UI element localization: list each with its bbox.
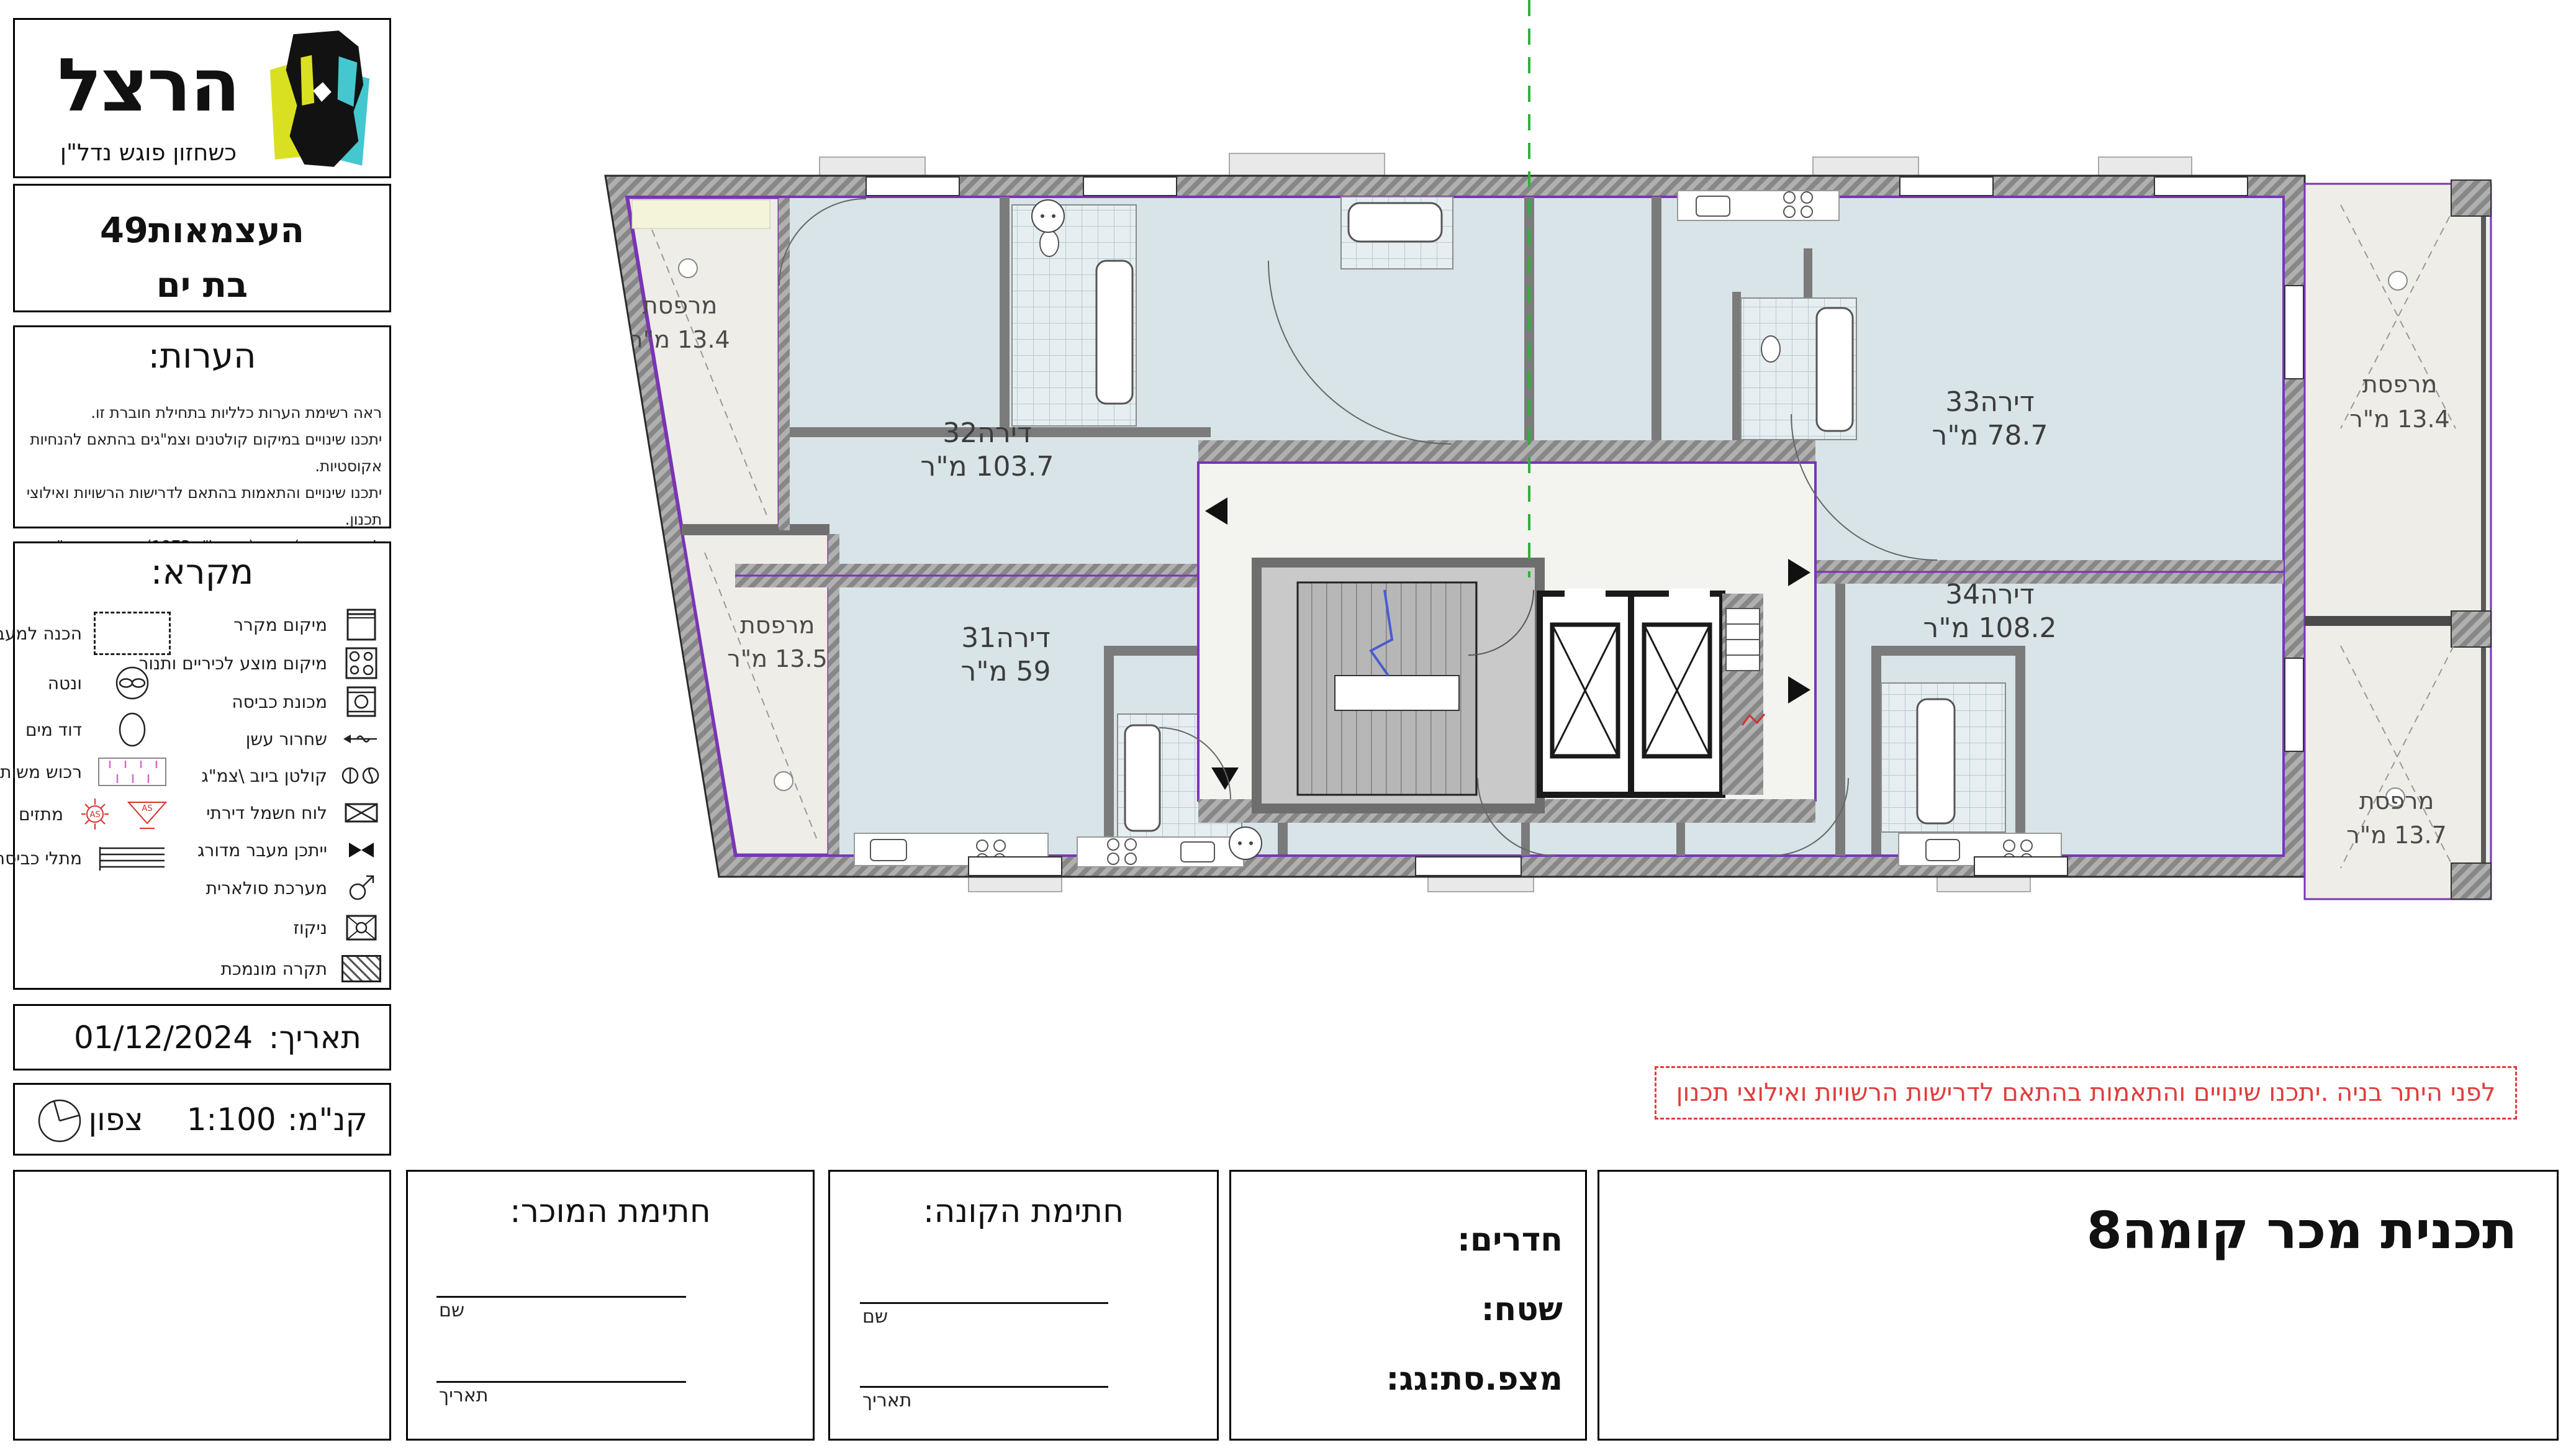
buyer-name-line[interactable]: [860, 1302, 1108, 1304]
smoke-release-icon: [337, 730, 386, 748]
legend-item-electrical-panel: לוח חשמל דירתי: [204, 794, 386, 831]
legend-item-solar-system: מערכת סולארית: [204, 869, 386, 907]
legend-item-stove: מיקום מוצע לכיריים ותנור: [204, 644, 386, 682]
apartment-31-area: 59 מ"ר: [961, 656, 1051, 687]
floor-plan: דירה32 103.7 מ"ר דירה33 78.7 מ"ר דירה31 …: [577, 149, 2539, 913]
legend-item-vent: ונטה: [17, 659, 173, 707]
scale-box: קנ"מ: 1:100 צפון: [13, 1083, 391, 1156]
sewage-collector-icon: [337, 765, 386, 786]
apartment-details-box: חדרים: שטח: מצפ.סת:גג:: [1229, 1170, 1587, 1441]
solar-system-icon: [337, 872, 386, 904]
core-top-wall: [1198, 440, 1815, 464]
seller-date-label: תאריך: [439, 1385, 489, 1406]
balcony-divider-wall: [682, 524, 829, 535]
section-line: [1528, 0, 1530, 577]
notes-box: הערות: ראה רשימת הערות כלליות בתחילת חוב…: [13, 325, 391, 528]
balcony-right-bottom-area: 13.7 מ"ר: [2346, 822, 2446, 849]
project-name-box: העצמאות49 בת ים: [13, 184, 391, 312]
electrical-panel-icon: [337, 802, 386, 824]
empty-title-block-box: [13, 1170, 391, 1441]
legend-item-condenser-prep: הכנה למעבה: [17, 608, 173, 659]
planning-warning-text: לפני היתר בניה .יתכנו שינויים והתאמות בה…: [1676, 1079, 2496, 1107]
drawing-title-box: תכנית מכר קומה8: [1598, 1170, 2559, 1441]
seller-date-line[interactable]: [436, 1381, 686, 1383]
legend-box: מקרא: מיקום מקרר מיקום מוצע לכיריים ותנו…: [13, 541, 391, 990]
apartment-33-name: דירה33: [1945, 386, 2034, 418]
elevator-door-gap: [1565, 589, 1606, 599]
apartment-31-name: דירה31: [961, 622, 1050, 654]
note-line-3: יתכנו שינויים והתאמות בהתאם לדרישות הרשו…: [20, 479, 382, 533]
drawing-title: תכנית מכר קומה8: [2087, 1202, 2517, 1261]
legend-item-drainage: ניקוז: [204, 907, 386, 948]
herzl-logo-icon: [265, 29, 376, 170]
buyer-name-label: שם: [862, 1306, 888, 1328]
balcony-left-bottom-area: 13.5 מ"ר: [727, 645, 827, 672]
note-line-1: ראה רשימת הערות כלליות בתחילת חוברת זו.: [20, 399, 382, 426]
buyer-date-line[interactable]: [860, 1386, 1108, 1388]
logo-box: הרצל כשחזון פוגש נדל"ן: [13, 18, 391, 178]
scale-label: קנ"מ:: [287, 1102, 368, 1138]
common-property-icon: [92, 757, 173, 787]
legend-item-laundry-hangers: מתלי כביסה: [17, 836, 173, 880]
planning-warning-box: לפני היתר בניה .יתכנו שינויים והתאמות בה…: [1655, 1066, 2517, 1120]
seller-name-label: שם: [439, 1300, 464, 1321]
logo-text: הרצל: [34, 48, 263, 122]
refrigerator-icon: [337, 607, 386, 642]
legend-title: מקרא:: [15, 552, 389, 592]
balcony-left-top-area: 13.4 מ"ר: [630, 326, 730, 353]
legend-item-washing-machine: מכונת כביסה: [204, 682, 386, 721]
project-name-line1: העצמאות49: [15, 204, 389, 258]
legend-item-sprinklers: AS AS מתזים: [17, 792, 173, 836]
north-arrow-icon: [35, 1096, 84, 1146]
notes-title: הערות:: [15, 336, 389, 376]
buyer-signature-box: חתימת הקונה: שם תאריך: [828, 1170, 1219, 1441]
area-label: שטח:: [1481, 1291, 1563, 1328]
legend-left-column: הכנה למעבה ונטה דוד מים רכוש משותף: [17, 608, 173, 880]
seller-signature-box: חתימת המוכר: שם תאריך: [406, 1170, 815, 1441]
elevator-door-gap: [1669, 589, 1710, 599]
apartment-32-name: דירה32: [942, 417, 1031, 449]
seller-signature-title: חתימת המוכר:: [408, 1193, 813, 1230]
water-heater-icon: [92, 710, 173, 749]
balcony-left-top-name: מרפסת: [643, 292, 718, 319]
washing-machine-icon: [337, 684, 386, 719]
scale-value: 1:100: [187, 1102, 276, 1138]
drain-marker: [679, 259, 697, 278]
vent-icon: [92, 663, 173, 703]
balcony-right-bottom-name: מרפסת: [2359, 787, 2434, 815]
stove-icon: [337, 646, 386, 681]
date-box: תאריך: 01/12/2024: [13, 1004, 391, 1071]
drainage-icon: [337, 913, 386, 943]
balcony-right-rail: [2481, 184, 2486, 899]
condenser-prep-icon: [92, 612, 173, 655]
drain-marker: [774, 772, 793, 790]
date-value: 01/12/2024: [74, 1020, 253, 1056]
legend-item-water-heater: דוד מים: [17, 707, 173, 752]
sprinklers-icon: AS AS: [73, 794, 173, 835]
legend-item-stepped-passage: ייתכן מעבר מדורג: [204, 831, 386, 869]
floor-plan-sheet: { "branding": { "logo_text": "הרצל", "lo…: [0, 0, 2576, 1453]
apartment-32-area: 103.7 מ"ר: [921, 451, 1054, 482]
note-line-2: יתכנו שינויים במיקום קולטנים וצמ"גים בהת…: [20, 426, 382, 479]
project-name-line2: בת ים: [15, 259, 389, 313]
svg-text:AS: AS: [142, 804, 152, 813]
apartment-34-name: דירה34: [1945, 579, 2034, 610]
legend-item-lowered-ceiling: תקרה מונמכת: [204, 948, 386, 989]
seller-name-line[interactable]: [436, 1296, 686, 1298]
apartment-34-area: 108.2 מ"ר: [1923, 612, 2057, 644]
legend-item-refrigerator: מיקום מקרר: [204, 605, 386, 644]
buyer-date-label: תאריך: [862, 1390, 912, 1411]
elevator-car-1: [1552, 625, 1618, 756]
rooms-label: חדרים:: [1457, 1221, 1563, 1259]
logo-tagline: כשחזון פוגש נדל"ן: [34, 139, 263, 166]
buyer-signature-title: חתימת הקונה:: [830, 1193, 1217, 1230]
apartment-33-area: 78.7 מ"ר: [1932, 420, 2048, 451]
stair-landing: [1335, 676, 1459, 710]
north-label: צפון: [88, 1102, 143, 1138]
legend-item-sewage-collector: קולטן ביוב \צמ"ג: [204, 757, 386, 794]
balcony-right-top-area: 13.4 מ"ר: [2349, 405, 2449, 433]
laundry-hangers-icon: [92, 842, 173, 874]
stepped-passage-icon: [337, 840, 386, 861]
elevator-car-2: [1644, 625, 1710, 756]
balcony-left-bottom-name: מרפסת: [740, 612, 815, 639]
legend-item-smoke-release: שחרור עשן: [204, 721, 386, 757]
roof-patch: [632, 200, 770, 229]
legend-right-column: מיקום מקרר מיקום מוצע לכיריים ותנור מכונ…: [204, 605, 386, 989]
date-label: תאריך:: [269, 1020, 361, 1056]
svg-text:AS: AS: [89, 810, 100, 820]
drain-marker: [2388, 271, 2407, 290]
lowered-ceiling-icon: [337, 955, 386, 982]
balcony-roof-label: מצפ.סת:גג:: [1386, 1360, 1563, 1398]
balcony-right-top-name: מרפסת: [2362, 371, 2438, 398]
legend-item-common-property: רכוש משותף: [17, 752, 173, 792]
